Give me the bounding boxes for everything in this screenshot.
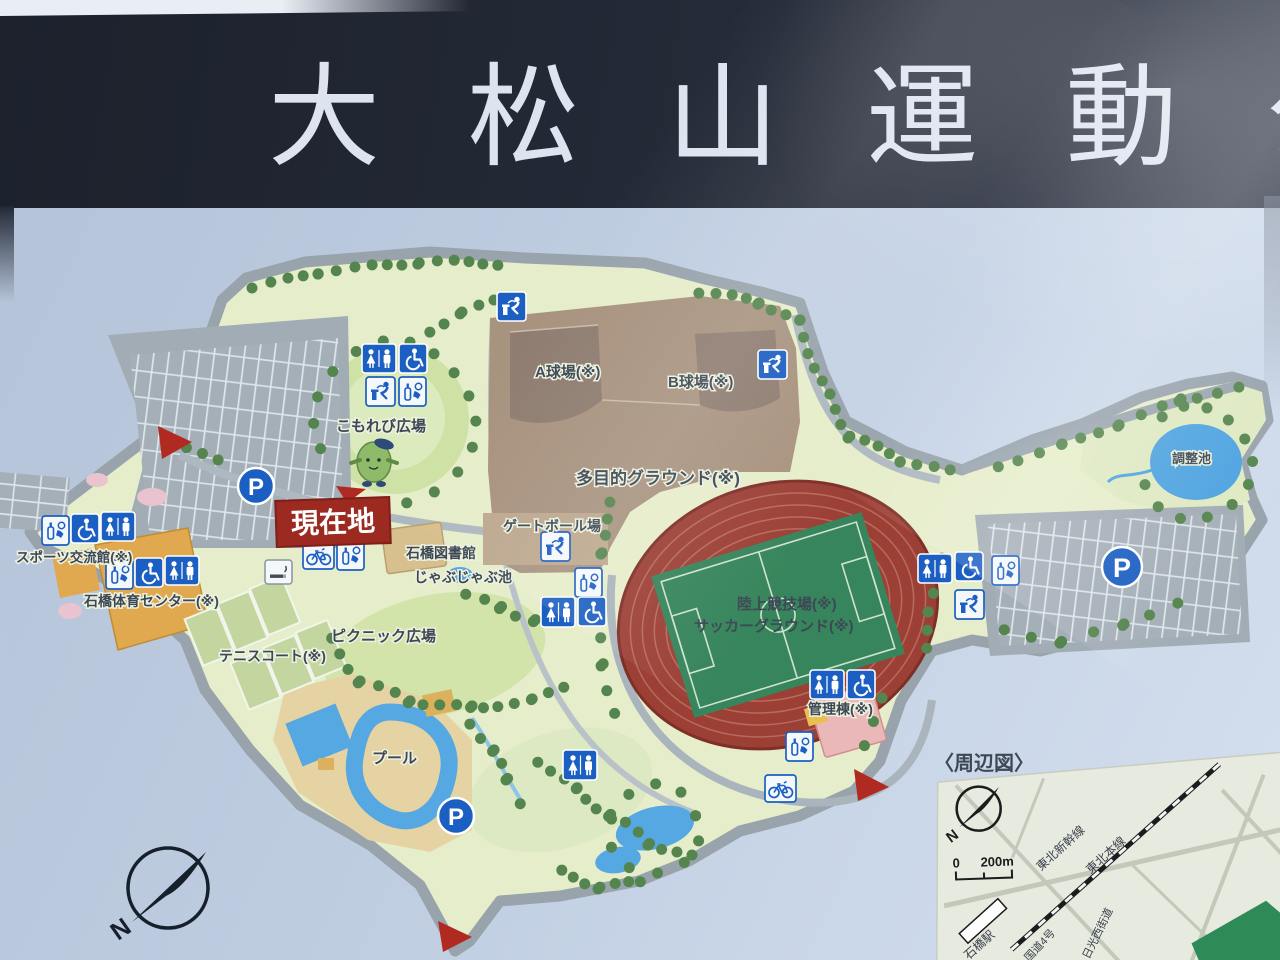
label-jabujabu: じゃぶじゃぶ池 bbox=[414, 569, 512, 585]
toilet-icon bbox=[165, 556, 199, 585]
cherry-trees bbox=[137, 488, 167, 506]
board-top-edge bbox=[0, 0, 470, 16]
drinking-fountain-icon bbox=[541, 532, 570, 561]
label-gym: 石橋体育センター(※) bbox=[83, 593, 219, 609]
vending-machine-icon bbox=[42, 516, 69, 545]
wheelchair-icon bbox=[847, 670, 875, 699]
label-admin: 管理棟(※) bbox=[808, 701, 873, 717]
wheelchair-icon bbox=[955, 552, 983, 581]
park-title: 大松山運動公 bbox=[268, 62, 1280, 174]
label-multi-ground: 多目的グラウンド(※) bbox=[576, 468, 740, 488]
label-a-field: A球場(※) bbox=[535, 363, 600, 381]
label-komorebi: こもれび広場 bbox=[336, 417, 426, 435]
label-gateball: ゲートボール場 bbox=[503, 518, 601, 534]
wheelchair-icon bbox=[135, 558, 163, 587]
parking-letter: P bbox=[248, 474, 264, 501]
smoking-area-icon bbox=[265, 560, 292, 584]
label-picnic: ピクニック広場 bbox=[331, 627, 436, 645]
scale-start: 0 bbox=[952, 855, 960, 870]
cherry-trees bbox=[58, 603, 82, 619]
label-athletics: 陸上競技場(※) bbox=[737, 595, 837, 613]
toilet-icon bbox=[563, 750, 597, 780]
label-b-field: B球場(※) bbox=[668, 373, 733, 391]
vending-machine-icon bbox=[399, 377, 426, 406]
parking-icon: P bbox=[238, 468, 274, 504]
wheelchair-icon bbox=[71, 514, 99, 543]
parking-letter: P bbox=[448, 804, 464, 831]
compass-rose: N bbox=[105, 848, 208, 946]
parking-icon: P bbox=[1102, 547, 1142, 587]
toilet-icon bbox=[918, 554, 952, 583]
toilet-icon bbox=[101, 512, 135, 541]
inset-map: 東北新幹線 東北本線 石橋駅 国道4号 日光西街道 N 0 200m bbox=[929, 752, 1280, 960]
label-pool: プール bbox=[372, 750, 417, 767]
cherry-trees bbox=[86, 473, 108, 487]
vending-machine-icon bbox=[575, 568, 602, 597]
toilet-icon bbox=[362, 344, 396, 373]
pool-building bbox=[318, 758, 334, 770]
wheelchair-icon bbox=[578, 597, 606, 626]
drinking-fountain-icon bbox=[366, 377, 395, 406]
parking-icon: P bbox=[438, 798, 474, 834]
current-location-sign: 現在地 bbox=[275, 497, 391, 547]
toilet-icon bbox=[810, 670, 844, 699]
label-soccer: サッカーグラウンド(※) bbox=[694, 617, 854, 635]
drinking-fountain-icon bbox=[758, 350, 787, 379]
parking-letter: P bbox=[1113, 553, 1131, 583]
wheelchair-icon bbox=[399, 344, 427, 373]
drinking-fountain-icon bbox=[955, 590, 984, 619]
vending-machine-icon bbox=[786, 732, 813, 761]
compass-north-label: N bbox=[105, 913, 136, 946]
park-map-graphic: P P P A球場(※) B球場(※) 多目的グラウンド(※) こもれび広場 石… bbox=[0, 208, 1280, 960]
current-location-text: 現在地 bbox=[290, 506, 375, 540]
label-pond: 調整池 bbox=[1172, 451, 1211, 466]
toilet-icon bbox=[541, 597, 575, 627]
park-title-text: 大松山運動 bbox=[268, 55, 1265, 180]
scale-end: 200m bbox=[980, 853, 1014, 869]
drinking-fountain-icon bbox=[497, 292, 526, 321]
label-sports-hall: スポーツ交流館(※) bbox=[16, 549, 132, 565]
label-library: 石橋図書館 bbox=[405, 545, 476, 561]
vending-machine-icon bbox=[992, 556, 1019, 585]
sign-title-band: 大松山運動公 bbox=[0, 0, 1280, 208]
inset-heading: 〈周辺図〉 bbox=[934, 752, 1034, 775]
bicycle-parking-icon bbox=[765, 775, 796, 802]
label-tennis: テニスコート(※) bbox=[219, 648, 326, 664]
park-title-partial-char: 公 bbox=[1265, 62, 1280, 174]
